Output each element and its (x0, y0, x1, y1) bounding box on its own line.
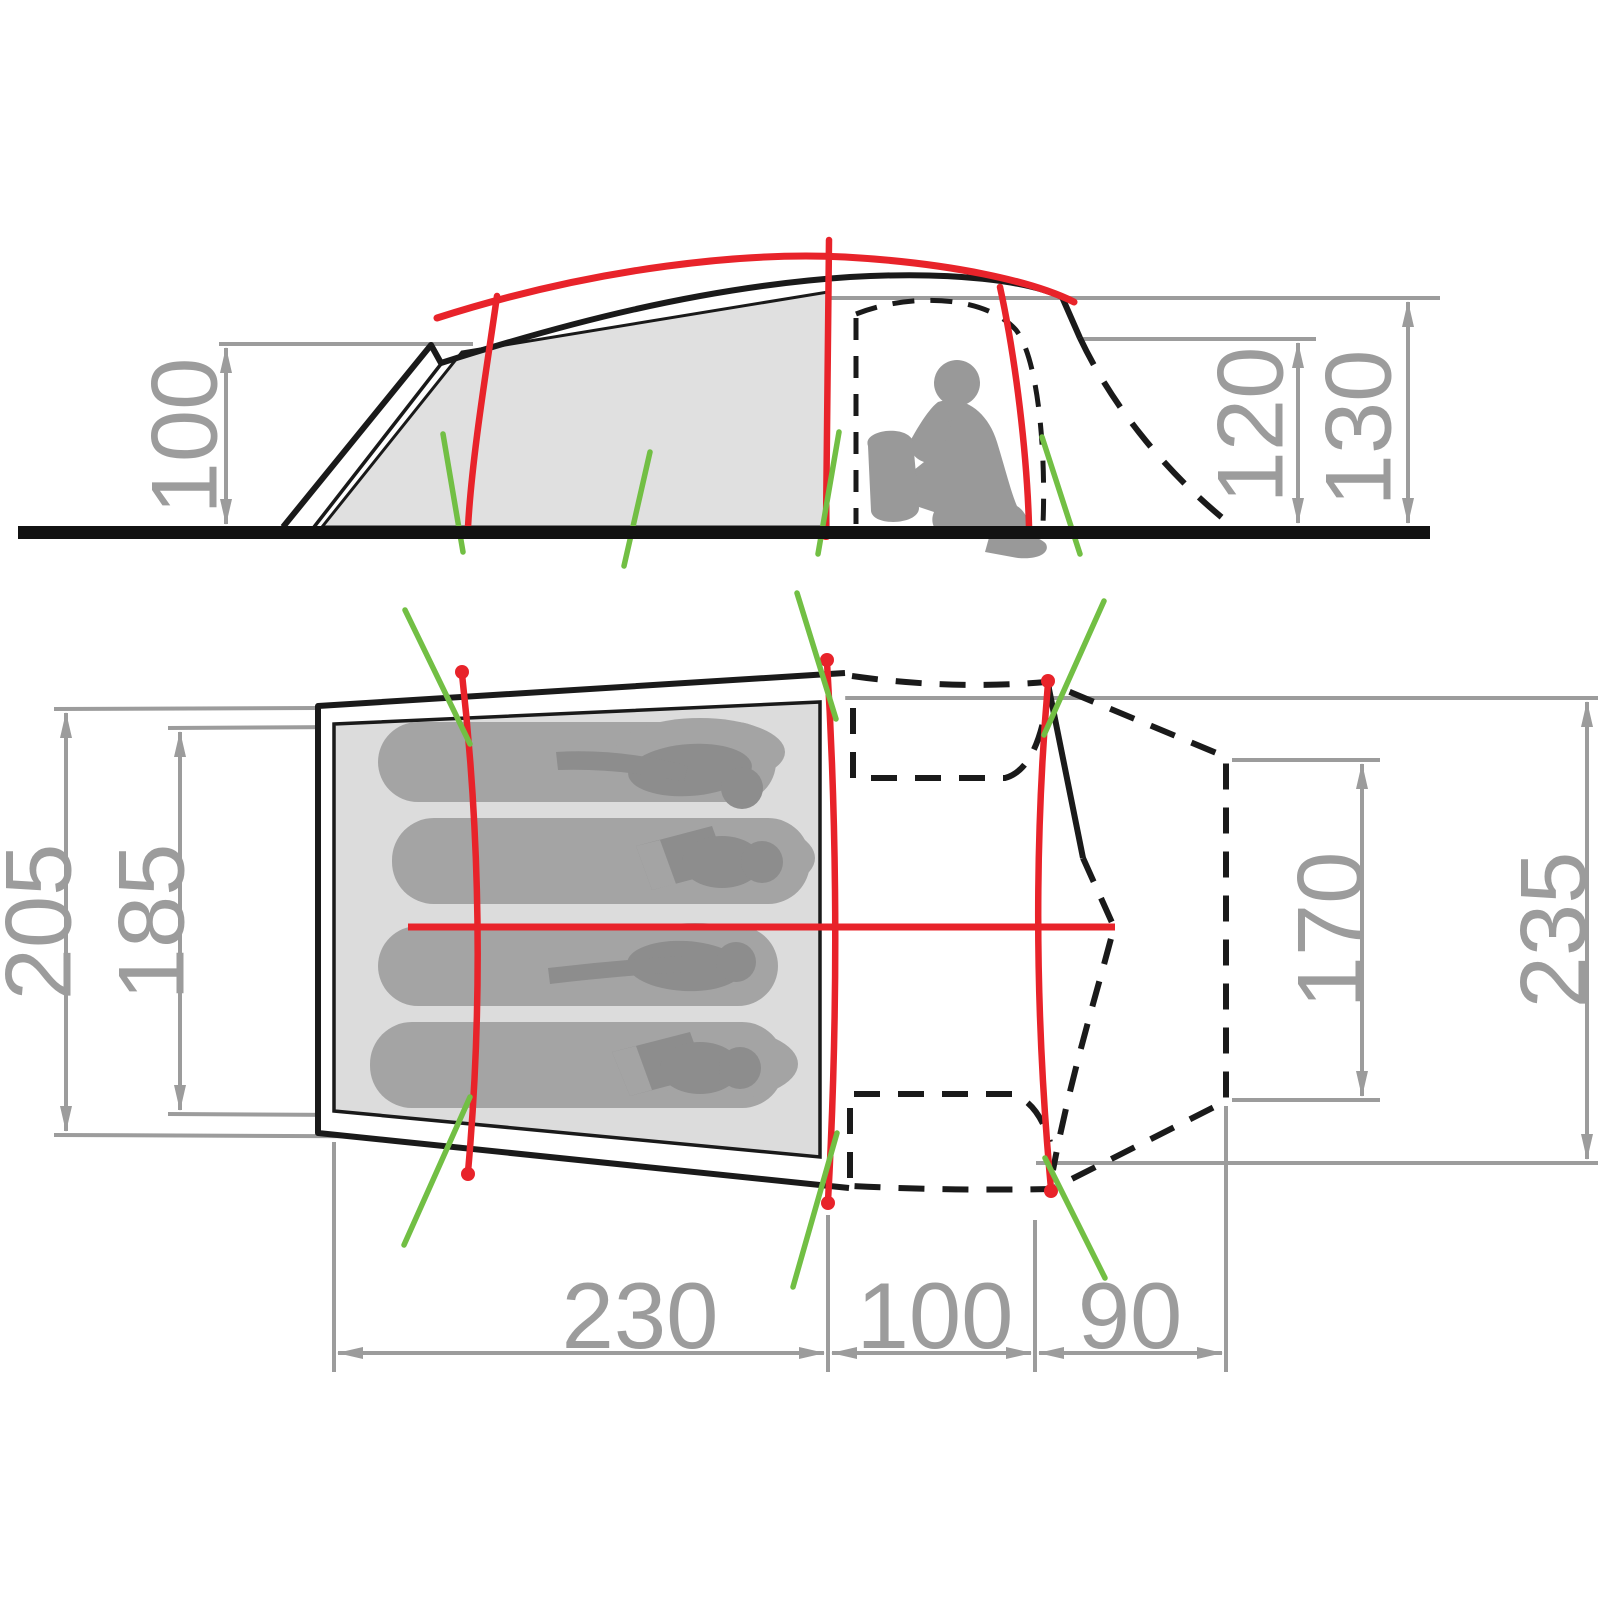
sleeper-silhouette (378, 923, 778, 1006)
dim-label-height-120: 120 (1198, 347, 1303, 504)
tent-dimensions-diagram: 100 120 130 (0, 0, 1600, 1600)
gear-bag (867, 431, 919, 522)
side-view: 100 120 130 (18, 240, 1440, 566)
door-rolled-dashed-top (853, 708, 1046, 778)
dim-label-length-230: 230 (562, 1263, 719, 1368)
plan-view: 205 185 170 235 230 100 90 (0, 593, 1600, 1372)
dim-label-height-100: 100 (132, 358, 237, 515)
guy-line (1044, 601, 1104, 735)
dim-label-width-185: 185 (99, 844, 204, 1001)
pole-end-dot (821, 1196, 835, 1210)
person-body (899, 400, 1028, 538)
sleeper-silhouette (370, 1022, 798, 1108)
dim-label-width-170: 170 (1278, 852, 1383, 1009)
door-rolled-dashed-bottom (850, 1094, 1050, 1178)
person-head (934, 360, 980, 406)
rear-door-dashed (1053, 858, 1114, 1170)
diagram-canvas: 100 120 130 (0, 0, 1600, 1600)
ground-line (18, 526, 1430, 539)
dim-label-length-90: 90 (1078, 1263, 1183, 1368)
pole-end-dot (461, 1167, 475, 1181)
dim-label-height-130: 130 (1306, 350, 1411, 507)
dim-label-width-235: 235 (1501, 852, 1600, 1009)
dim-label-length-100: 100 (857, 1263, 1014, 1368)
pole-end-dot (1044, 1184, 1058, 1198)
sleeper-silhouette (378, 718, 785, 809)
sleeping-cabin-side (322, 292, 828, 527)
sleeper-silhouette (392, 818, 815, 904)
pole-end-dot (455, 665, 469, 679)
dim-label-width-205: 205 (0, 844, 91, 1001)
pole-end-dot (1041, 674, 1055, 688)
